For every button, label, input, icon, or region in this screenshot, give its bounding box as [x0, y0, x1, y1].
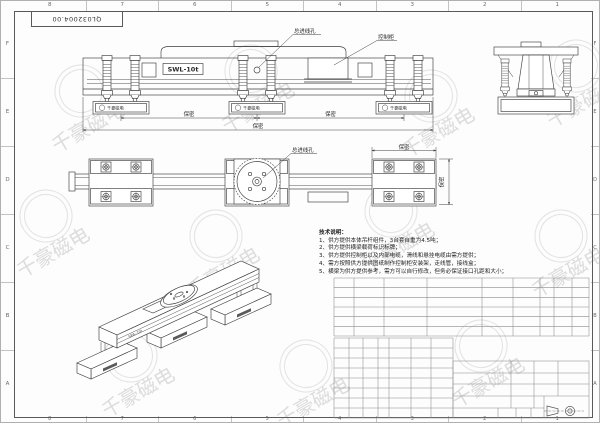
- projection-symbol: [544, 406, 584, 416]
- magnet-brand-label: 千豪磁电: [243, 105, 261, 112]
- wire-inlet-callout: 总进线孔: [294, 27, 316, 35]
- center-flange: [234, 159, 280, 205]
- model-label: SWL-10t: [168, 66, 199, 74]
- dim-overall: 保密: [253, 122, 264, 130]
- side-view: [494, 42, 578, 114]
- dim-magnet-width: 保密: [399, 143, 410, 151]
- magnet-group-top-view: [89, 159, 153, 206]
- top-view: 总进线孔 保密 保密: [69, 143, 453, 206]
- note-item: 4、需方按照供方提供图纸制作控制柜安装架，走线管，接线盒；: [319, 261, 507, 269]
- bom-table: [334, 278, 589, 336]
- magnet-brand-label: 千豪磁电: [390, 105, 408, 112]
- top-wire-inlet-callout: 总进线孔: [292, 146, 314, 154]
- dim-magnet-depth: 保密: [438, 176, 446, 187]
- front-view: 千豪磁电 千豪磁电 千豪磁电 SWL-10t 总进线孔 控制柜 保密 保密 保密: [83, 27, 433, 133]
- note-item: 2、供方提供横梁载荷标识标牌；: [319, 245, 507, 253]
- drawing-sheet: 千豪磁电 千豪磁电 千豪磁电 千豪磁电 千豪磁电 千豪磁电 千豪磁电 千豪磁电 …: [0, 0, 600, 423]
- dim-span-left: 保密: [184, 110, 195, 118]
- control-cabinet: [308, 58, 348, 79]
- magnet-group-top-view: [372, 159, 436, 206]
- iso-view: SWL-10t: [77, 261, 271, 379]
- technical-notes: 技术说明： 1、供方提供本体吊杆组件，3台套自重为4.5吨； 2、供方提供横梁载…: [319, 230, 507, 276]
- revision-table: [334, 338, 453, 418]
- cad-linework: 千豪磁电 千豪磁电 千豪磁电 SWL-10t 总进线孔 控制柜 保密 保密 保密: [1, 1, 600, 423]
- dim-span-right: 保密: [325, 110, 336, 118]
- cabinet-outline-top: [308, 192, 348, 202]
- note-item: 5、横梁为供方提供参考，需方可以自行修改，但务必保证接口孔距和大小；: [319, 269, 507, 277]
- cabinet-callout: 控制柜: [378, 33, 395, 41]
- wire-inlet-hole: [254, 67, 260, 73]
- notes-title: 技术说明：: [319, 230, 507, 238]
- note-item: 3、供方提供控制柜以及内部电缆，滑线和悬挂电缆由需方提供；: [319, 253, 507, 261]
- magnet-brand-label: 千豪磁电: [107, 105, 125, 112]
